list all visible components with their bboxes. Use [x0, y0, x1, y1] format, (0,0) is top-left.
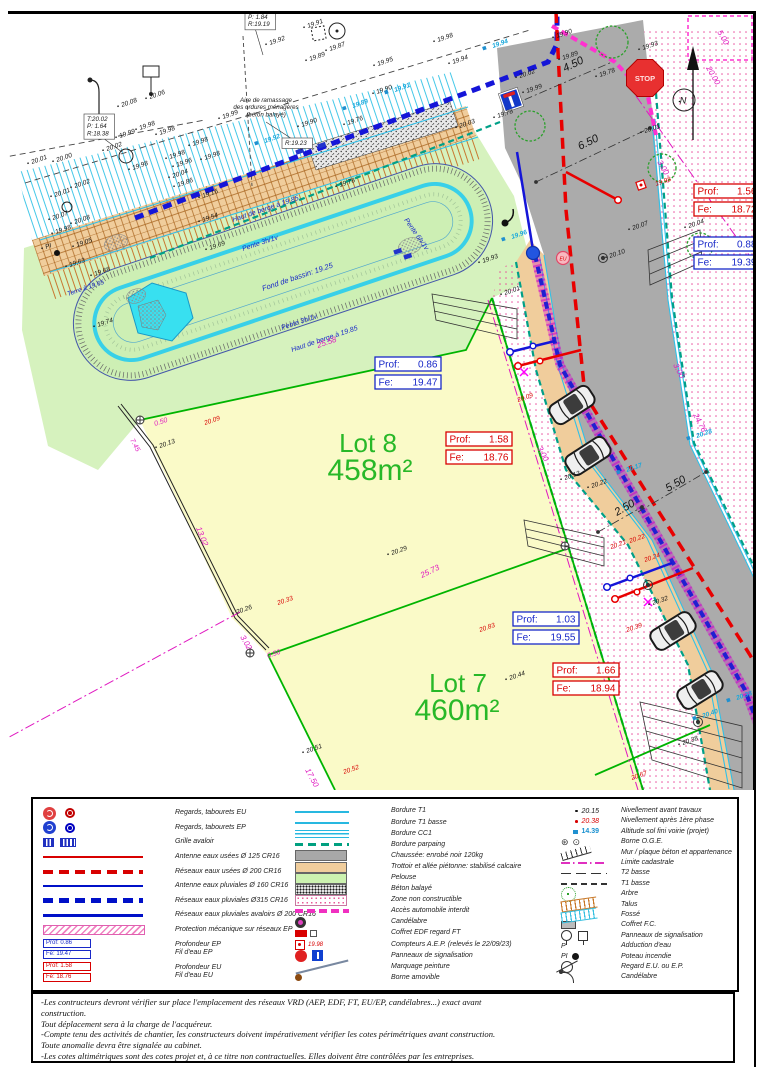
legend-label: Profondeur EPFil d'eau EP — [175, 941, 221, 958]
note-line: Tout déplacement sera à la charge de l'a… — [41, 1019, 725, 1030]
svg-text:18.94: 18.94 — [590, 684, 615, 695]
legend-label: Antenne eaux usées Ø 125 CR16 — [175, 853, 280, 861]
spot-elevation-phase1: EU — [560, 257, 567, 263]
legend-symbol-sw-tan — [295, 862, 391, 873]
legend-label: Réseaux eaux usées Ø 200 CR16 — [175, 868, 281, 876]
svg-text:EU: EU — [560, 257, 567, 263]
svg-text:18.76: 18.76 — [483, 453, 508, 464]
legend-entry: Mur / plaque béton et appartenance — [561, 848, 733, 858]
svg-text:P: 1.84: P: 1.84 — [248, 14, 268, 21]
legend-label: Candélabre — [621, 973, 657, 981]
legend-entry: 20.15Nivellement avant travaux — [561, 806, 733, 816]
legend-label: Panneaux de signalisation — [621, 932, 703, 940]
info-box: R:19.23 — [282, 138, 313, 148]
legend-label: Bordure parpaing — [391, 841, 445, 849]
legend-entry: Réseaux eaux pluviales Ø315 CR16 — [43, 894, 295, 909]
legend-entry: Trottoir et allée piétonne: stabilisé ca… — [295, 861, 561, 872]
legend-entry: Prof: 1.58Fe: 18.76Profondeur EUFil d'ea… — [43, 960, 295, 983]
legend-entry: Panneaux de signalisation — [561, 931, 733, 941]
legend-label: Bordure T1 basse — [391, 819, 447, 827]
legend-symbol-line-cyan — [295, 822, 391, 824]
ep-manhole — [527, 247, 540, 260]
svg-text:Aire de ramassage: Aire de ramassage — [239, 97, 292, 104]
legend-label: Poteau incendie — [621, 953, 671, 961]
legend-column-survey: 20.15Nivellement avant travaux20.38Nivel… — [561, 806, 733, 983]
legend-symbol-hatch-pink — [43, 925, 175, 935]
legend-label: Compteurs A.E.P. (relevés le 22/09/23) — [391, 941, 512, 949]
svg-text:458m²: 458m² — [327, 454, 412, 487]
svg-text:1.03: 1.03 — [556, 615, 576, 626]
svg-text:N: N — [680, 96, 687, 106]
legend-label: Altitude sol fini voirie (projet) — [621, 828, 709, 836]
legend-label: T1 basse — [621, 880, 650, 888]
legend-label: Regard E.U. ou E.P. — [621, 963, 684, 971]
lot-label: 458m² — [327, 454, 412, 487]
legend-entry: 19.98Compteurs A.E.P. (relevés le 22/09/… — [295, 939, 561, 950]
note-line: -Compte tenu des activités de chantier, … — [41, 1029, 725, 1040]
svg-text:R:18.38: R:18.38 — [87, 131, 109, 138]
legend-symbol-mur — [561, 849, 621, 857]
legend-symbol-dash-mag — [295, 909, 391, 913]
legend-entry: Limite cadastrale — [561, 858, 733, 868]
legend-entry: Marquage peinture — [295, 961, 561, 972]
legend-entry: Prof: 0.86Fe: 19.47Profondeur EPFil d'ea… — [43, 937, 295, 960]
lot-label: 460m² — [414, 694, 499, 727]
legend-label: Adduction d'eau — [621, 942, 671, 950]
legend-entry: Bordure T1 basse — [295, 817, 561, 828]
legend-label: T2 basse — [621, 869, 650, 877]
legend-symbol-cand2 — [561, 972, 621, 983]
svg-text:19.47: 19.47 — [412, 378, 437, 389]
legend-symbol-pi: PI — [561, 953, 621, 960]
legend-symbol-addu: P — [561, 943, 621, 950]
legend-symbol-marquage — [295, 966, 391, 968]
legend-label: Regards, tabourets EU — [175, 809, 246, 817]
legend-entry: Fossé — [561, 910, 733, 920]
legend-symbol-dash-red — [43, 870, 175, 874]
legend-entry: Regard E.U. ou E.P. — [561, 962, 733, 972]
legend-label: Zone non constructible — [391, 896, 462, 904]
legend-label: Coffret EDF regard FT — [391, 929, 461, 937]
legend-entry: Candélabre — [295, 917, 561, 928]
svg-text:19.55: 19.55 — [550, 633, 575, 644]
svg-text:1.58: 1.58 — [489, 435, 509, 446]
legend-symbol-dash-teal — [295, 843, 391, 846]
legend-label: Profondeur EUFil d'eau EU — [175, 964, 221, 981]
legend-entry: Antenne eaux pluviales Ø 160 CR16 — [43, 879, 295, 894]
fire-hydrant-dot — [54, 250, 60, 256]
legend-symbol-pt-r: 20.38 — [561, 818, 621, 825]
legend-symbol-coffret — [295, 930, 391, 937]
legend-symbol-line-cyan — [295, 811, 391, 813]
legend-label: Talus — [621, 901, 637, 909]
legend-entry: Chaussée: enrobé noir 120kg — [295, 850, 561, 861]
legend-label: Réseaux eaux pluviales Ø315 CR16 — [175, 897, 288, 905]
legend-label: Nivellement après 1ère phase — [621, 817, 714, 825]
legend-entry: Antenne eaux usées Ø 125 CR16 — [43, 850, 295, 865]
svg-text:Fe:: Fe: — [557, 684, 571, 695]
svg-text:Prof:: Prof: — [557, 666, 578, 677]
legend-label: Pelouse — [391, 874, 416, 882]
legend-entry: Panneaux de signalisation — [295, 950, 561, 961]
legend-symbol-line-blue — [43, 885, 175, 887]
legend-entry: Regards, tabourets EU — [43, 806, 295, 821]
svg-text:(béton balayé): (béton balayé) — [246, 111, 286, 118]
legend-label: Bordure CC1 — [391, 830, 432, 838]
legend-label: Antenne eaux pluviales Ø 160 CR16 — [175, 882, 288, 890]
svg-text:460m²: 460m² — [414, 694, 499, 727]
legend-symbol-candelabre — [295, 917, 391, 928]
legend-label: Trottoir et allée piétonne: stabilisé ca… — [391, 863, 521, 871]
note-line: -Les contructeurs devront vérifier sur p… — [41, 997, 725, 1008]
legend-symbol-dash-blue — [43, 898, 175, 903]
svg-text:R:19.19: R:19.19 — [248, 21, 270, 28]
legend-label: Borne amovible — [391, 974, 440, 982]
legend-symbol-sw-green — [295, 873, 391, 884]
legend-column-surfaces: Bordure T1Bordure T1 basseBordure CC1Bor… — [295, 806, 561, 984]
legend: Regards, tabourets EURegards, tabourets … — [31, 797, 739, 992]
legend-entry: Coffret F.C. — [561, 920, 733, 930]
legend-symbol-regard-ep — [43, 821, 175, 834]
legend-symbol-limite — [561, 862, 621, 864]
stop-sign-label: STOP — [635, 74, 655, 83]
site-plan: STOP — [0, 0, 766, 790]
legend-entry: Bordure parpaing — [295, 839, 561, 850]
legend-symbol-grille — [43, 838, 175, 847]
svg-text:Prof:: Prof: — [698, 187, 719, 198]
legend-column-networks: Regards, tabourets EURegards, tabourets … — [43, 806, 295, 983]
legend-entry: T2 basse — [561, 868, 733, 878]
legend-symbol-box-eu: Prof: 1.58Fe: 18.76 — [43, 962, 175, 983]
svg-text:1.66: 1.66 — [596, 666, 616, 677]
aep-meter-icon — [636, 180, 646, 190]
svg-text:Fe:: Fe: — [517, 633, 531, 644]
legend-entry: Bordure CC1 — [295, 828, 561, 839]
legend-symbol-t1 — [561, 883, 621, 885]
legend-entry: Pelouse — [295, 873, 561, 884]
site-plan-document: STOP — [0, 0, 766, 1080]
legend-entry: PAdduction d'eau — [561, 941, 733, 951]
legend-label: Nivellement avant travaux — [621, 807, 702, 815]
legend-symbol-sw-gray — [295, 850, 391, 861]
legend-label: Accès automobile interdit — [391, 907, 469, 915]
svg-text:Fe:: Fe: — [698, 258, 712, 269]
legend-entry: 14.39Altitude sol fini voirie (projet) — [561, 827, 733, 837]
legend-entry: Grille avaloir — [43, 835, 295, 850]
legend-entry: 20.38Nivellement après 1ère phase — [561, 816, 733, 826]
legend-label: Bordure T1 — [391, 807, 426, 815]
legend-symbol-fosse — [561, 910, 621, 921]
svg-text:Fe:: Fe: — [698, 205, 712, 216]
legend-label: Chaussée: enrobé noir 120kg — [391, 852, 483, 860]
legend-symbol-pt-k: 20.15 — [561, 808, 621, 815]
svg-text:Fe:: Fe: — [450, 453, 464, 464]
legend-symbol-line-cc1 — [295, 830, 391, 838]
manhole-center — [336, 30, 339, 33]
notes: -Les contructeurs devront vérifier sur p… — [31, 992, 735, 1063]
info-box: P: 1.84R:19.19 — [245, 12, 276, 30]
legend-label: Grille avaloir — [175, 838, 214, 846]
legend-entry: Coffret EDF regard FT — [295, 928, 561, 939]
legend-symbol-sw-beton — [295, 884, 391, 895]
note-line: construction. — [41, 1008, 725, 1019]
svg-text:Prof:: Prof: — [450, 435, 471, 446]
legend-symbol-sw-zone — [295, 895, 391, 906]
legend-entry: Bordure T1 — [295, 806, 561, 817]
legend-label: Béton balayé — [391, 885, 432, 893]
legend-entry: Borne amovible — [295, 972, 561, 983]
svg-text:P: 1.64: P: 1.64 — [87, 123, 107, 130]
legend-label: Arbre — [621, 890, 638, 898]
legend-entry: Candélabre — [561, 972, 733, 982]
legend-symbol-regard-eu — [43, 807, 175, 820]
legend-entry: Zone non constructible — [295, 895, 561, 906]
legend-label: Candélabre — [391, 918, 427, 926]
legend-symbol-panneaux2 — [561, 930, 621, 941]
svg-text:Prof:: Prof: — [379, 360, 400, 371]
legend-label: Marquage peinture — [391, 963, 450, 971]
legend-label: Protection mécanique sur réseaux EP — [175, 926, 293, 934]
legend-symbol-borne-am — [295, 974, 391, 981]
legend-symbol-t2 — [561, 873, 621, 875]
legend-entry: Protection mécanique sur réseaux EP — [43, 923, 295, 938]
note-line: -Les cotes altimétriques sont des cotes … — [41, 1051, 725, 1062]
legend-entry: Réseaux eaux usées Ø 200 CR16 — [43, 864, 295, 879]
legend-symbol-line-blue2 — [43, 914, 175, 917]
legend-label: Fossé — [621, 911, 640, 919]
legend-label: Mur / plaque béton et appartenance — [621, 849, 732, 857]
svg-text:Prof:: Prof: — [517, 615, 538, 626]
legend-symbol-line-red — [43, 856, 175, 858]
legend-label: Panneaux de signalisation — [391, 952, 473, 960]
svg-text:0.86: 0.86 — [418, 360, 438, 371]
svg-text:Fe:: Fe: — [379, 378, 393, 389]
legend-symbol-coffret-fc — [561, 921, 621, 929]
svg-text:R:19.23: R:19.23 — [285, 140, 307, 147]
legend-symbol-compteur: 19.98 — [295, 940, 391, 950]
legend-entry: Accès automobile interdit — [295, 906, 561, 917]
legend-entry: Réseaux eaux pluviales avaloirs Ø 200 CR… — [43, 908, 295, 923]
stop-sign: STOP — [627, 60, 664, 97]
legend-label: Borne O.G.E. — [621, 838, 663, 846]
legend-label: Coffret F.C. — [621, 921, 656, 929]
legend-label: Regards, tabourets EP — [175, 824, 246, 832]
legend-symbol-pt-c: 14.39 — [561, 828, 621, 835]
legend-entry: Béton balayé — [295, 884, 561, 895]
svg-text:des ordures ménagères: des ordures ménagères — [233, 104, 298, 111]
legend-symbol-box-ep: Prof: 0.86Fe: 19.47 — [43, 939, 175, 960]
legend-label: Limite cadastrale — [621, 859, 674, 867]
legend-entry: Regards, tabourets EP — [43, 821, 295, 836]
svg-text:T:20.02: T:20.02 — [87, 116, 108, 123]
info-box: T:20.02P: 1.64R:18.38 — [84, 114, 115, 139]
legend-symbol-oge: ⊛⊙ — [561, 837, 621, 848]
svg-text:Prof:: Prof: — [698, 240, 719, 251]
note-line: Toute anomalie devra être signalée au ca… — [41, 1040, 725, 1051]
spot-elevation: N — [679, 96, 687, 106]
